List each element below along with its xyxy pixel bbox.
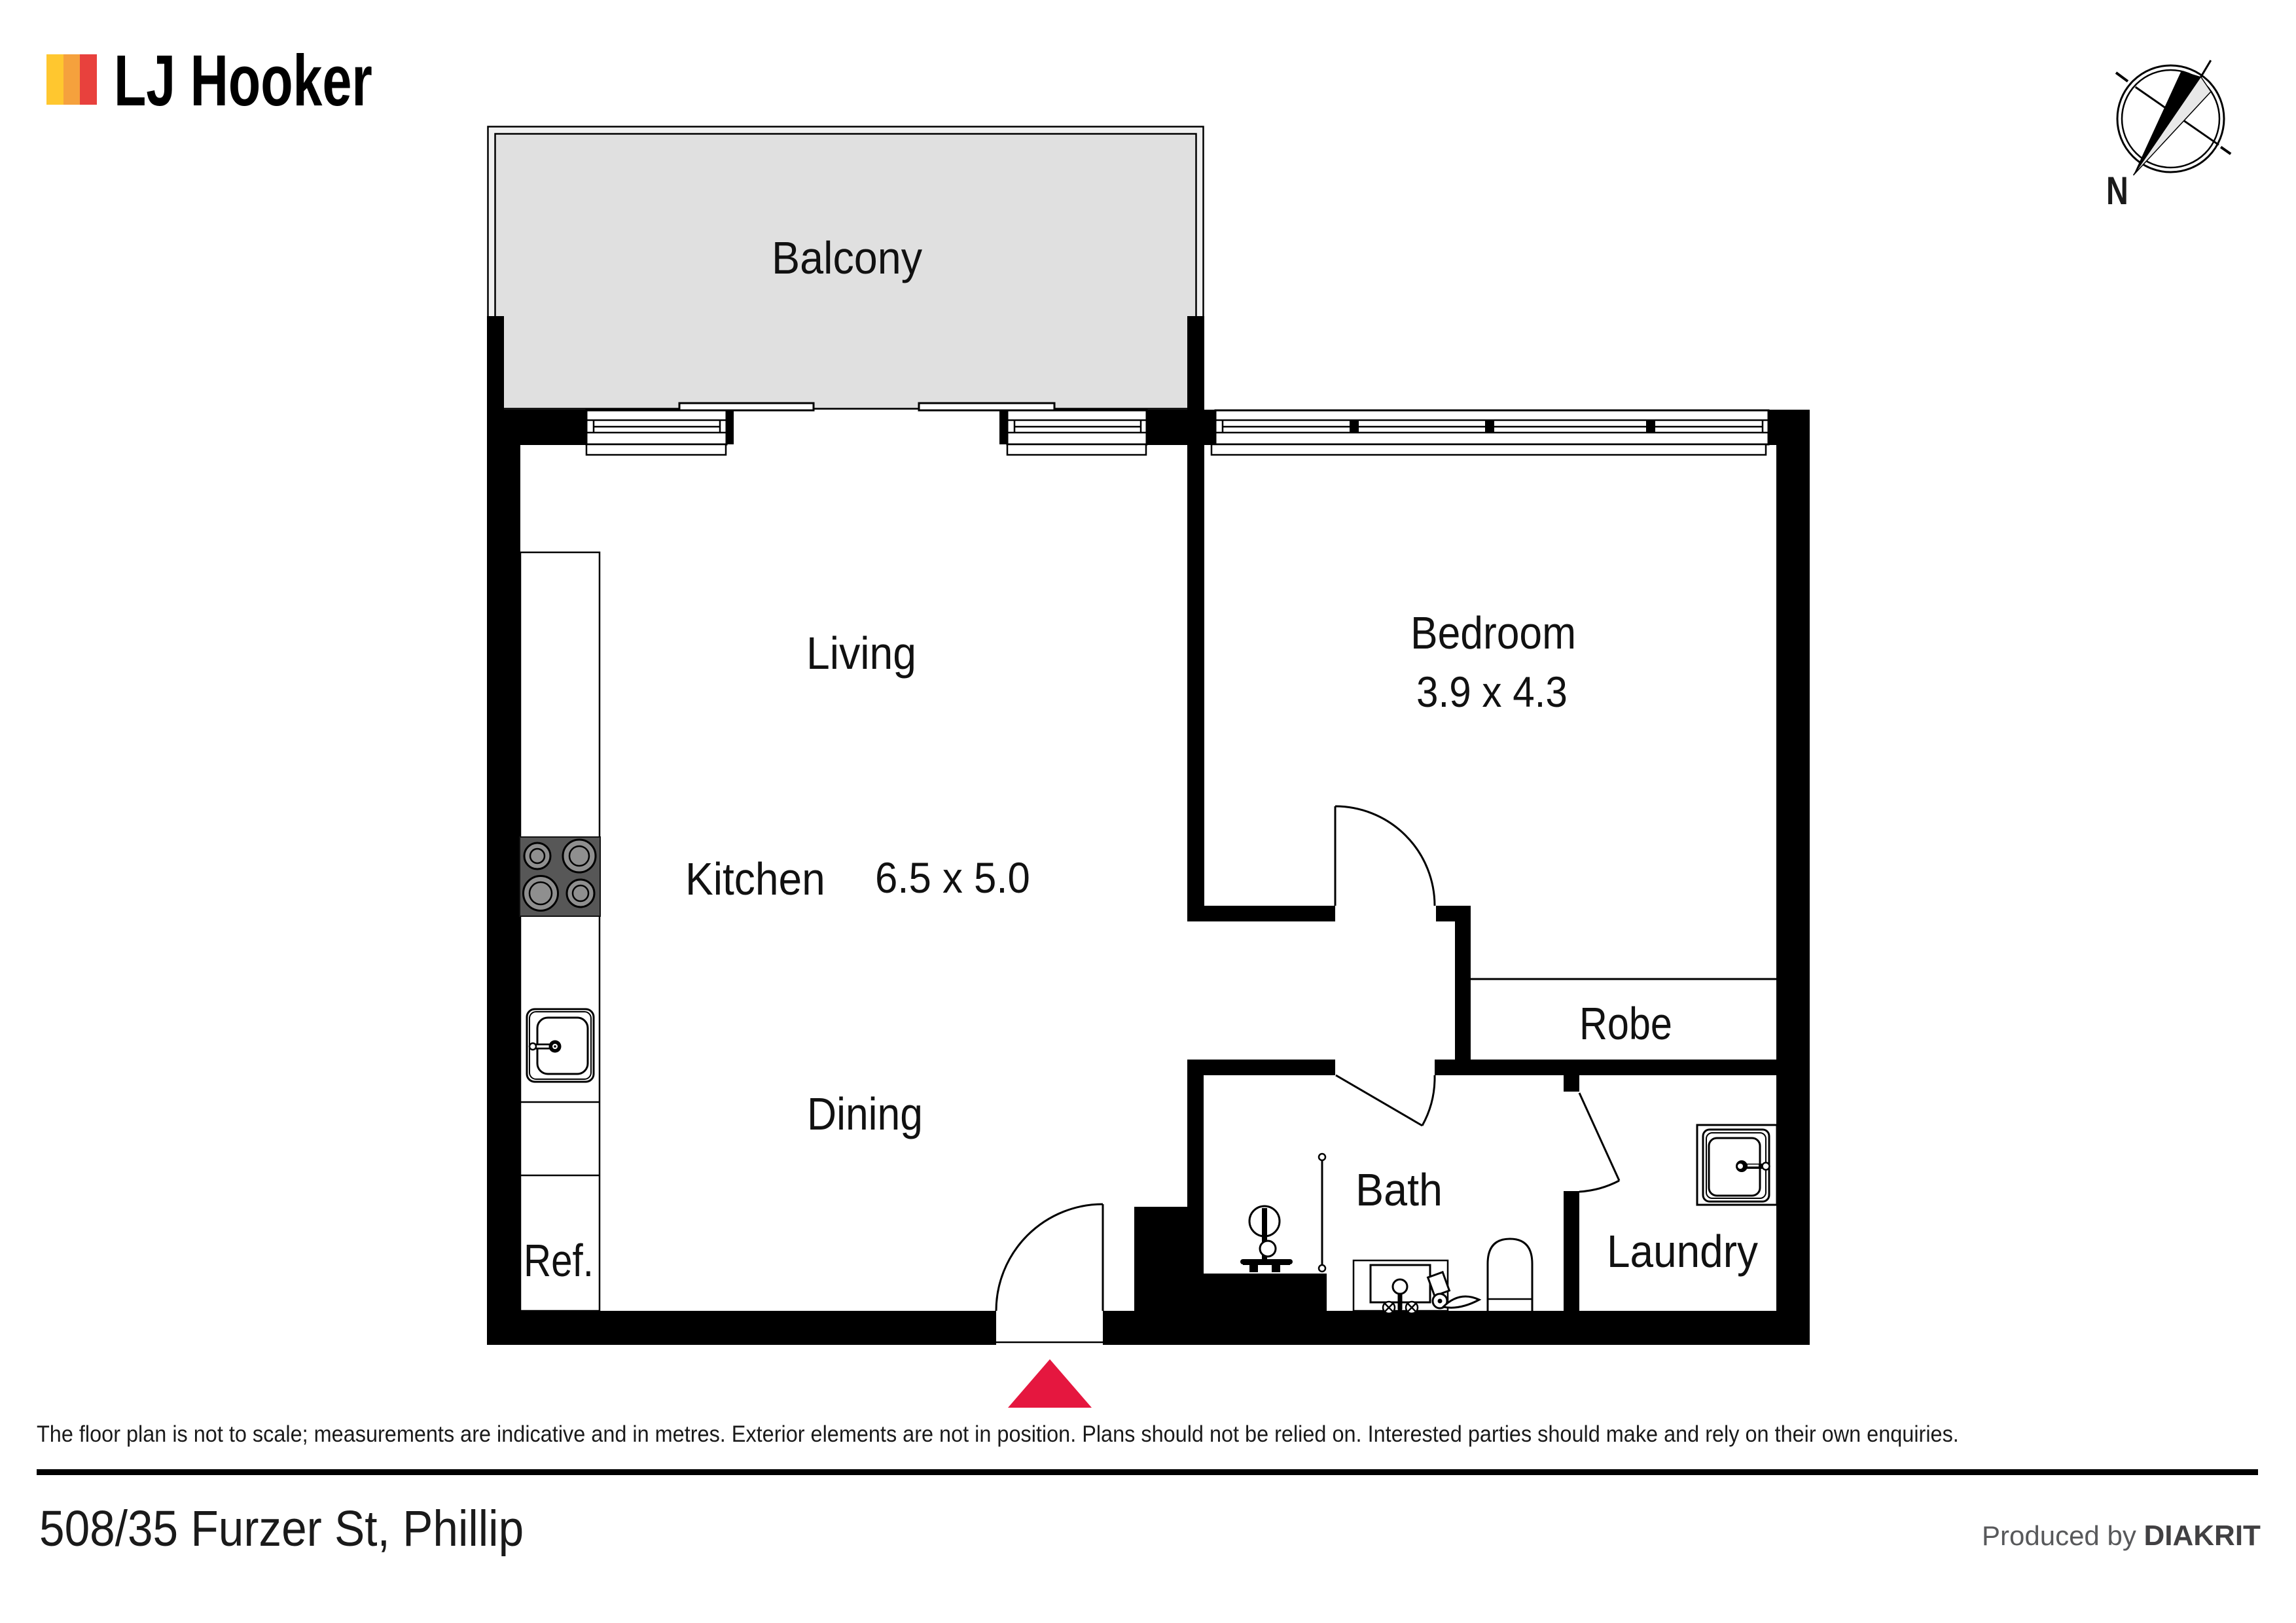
svg-text:Dining: Dining	[807, 1089, 923, 1140]
svg-text:508/35 Furzer St, Phillip: 508/35 Furzer St, Phillip	[39, 1501, 524, 1557]
svg-text:Laundry: Laundry	[1607, 1226, 1758, 1277]
svg-text:Living: Living	[806, 628, 916, 679]
svg-text:Bedroom: Bedroom	[1410, 608, 1576, 659]
svg-text:3.9 x 4.3: 3.9 x 4.3	[1416, 668, 1568, 716]
svg-text:Balcony: Balcony	[772, 233, 922, 284]
svg-text:Ref.: Ref.	[524, 1235, 594, 1286]
svg-text:Bath: Bath	[1355, 1165, 1443, 1216]
svg-text:The floor plan is not to scale: The floor plan is not to scale; measurem…	[37, 1421, 1959, 1447]
svg-text:Robe: Robe	[1579, 997, 1672, 1049]
svg-text:Kitchen: Kitchen	[685, 853, 825, 904]
svg-text:N: N	[2106, 169, 2128, 213]
svg-text:Produced by DIAKRIT: Produced by DIAKRIT	[1982, 1520, 2261, 1552]
svg-text:6.5 x 5.0: 6.5 x 5.0	[875, 853, 1030, 902]
svg-text:LJ Hooker: LJ Hooker	[114, 41, 372, 121]
